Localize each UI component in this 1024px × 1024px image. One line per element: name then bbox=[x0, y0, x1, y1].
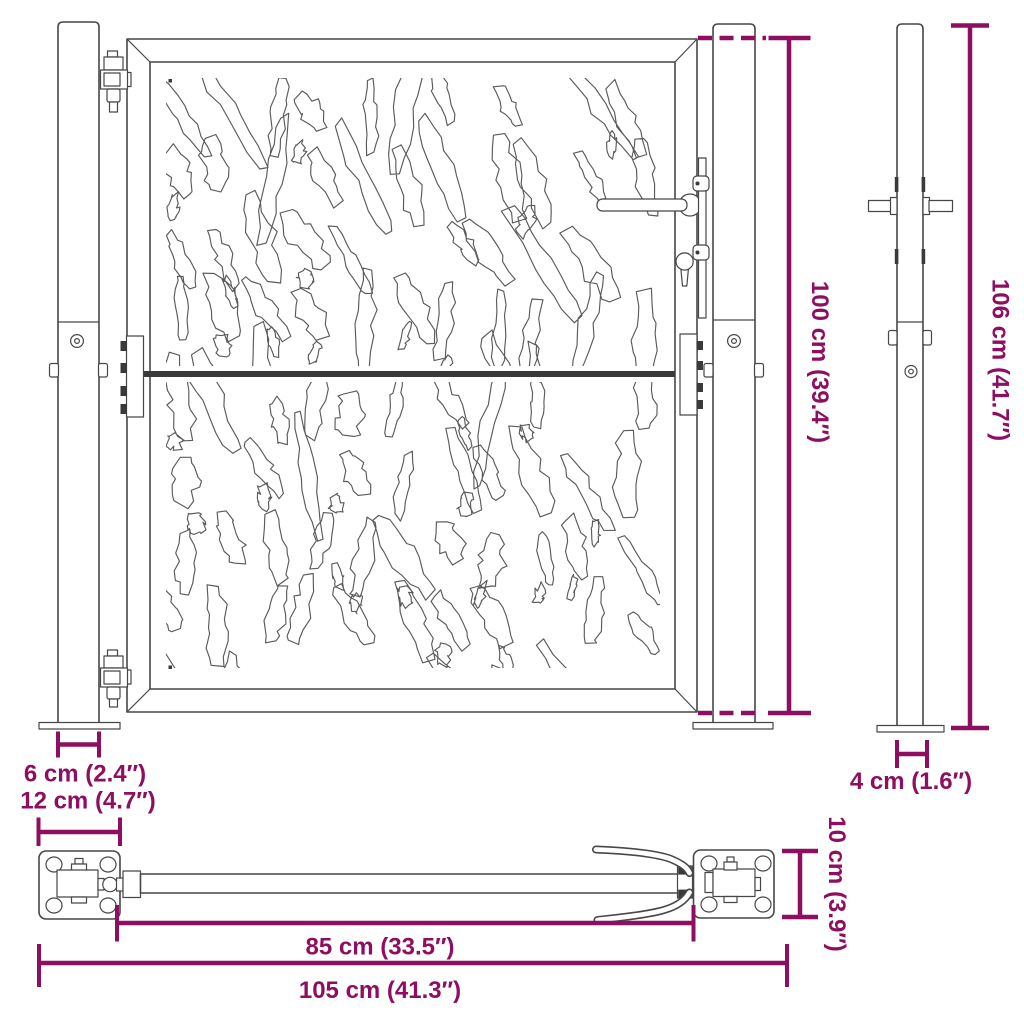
bar-coupler bbox=[123, 871, 141, 898]
panel-corner-dot-top bbox=[169, 79, 173, 83]
base-plate-width-label: 12 cm (4.7″) bbox=[20, 788, 156, 815]
mid-lock-plate-body bbox=[680, 334, 697, 415]
latch-right-tab bbox=[755, 878, 761, 891]
plate-hole bbox=[701, 897, 717, 912]
latch-body bbox=[713, 869, 755, 897]
side-latch-tick-4 bbox=[922, 249, 926, 264]
latch-pivot-upper bbox=[696, 182, 700, 186]
side-base-plate bbox=[877, 726, 944, 733]
side-latch-tick-2 bbox=[895, 249, 899, 264]
bottom-hinge-body-inner bbox=[104, 671, 120, 684]
plate-hole bbox=[100, 898, 116, 913]
bottom-hinge-pin bbox=[107, 687, 120, 699]
left-post-outline bbox=[58, 22, 99, 725]
left-post-screw bbox=[71, 335, 84, 348]
left-base-plate bbox=[39, 723, 120, 730]
panel-corner-dot-bottom bbox=[169, 666, 173, 670]
right-post bbox=[704, 24, 764, 725]
handle-bar bbox=[597, 199, 687, 211]
post-height-label: 106 cm (41.7″) bbox=[987, 279, 1014, 441]
post-side-width-label: 4 cm (1.6″) bbox=[850, 768, 972, 795]
plate-hole bbox=[755, 856, 771, 871]
top-hinge-pin-tip bbox=[110, 102, 118, 112]
bottom-hinge-pin-tip bbox=[110, 699, 118, 707]
side-post-bolt-right bbox=[923, 331, 932, 346]
side-latch-tick-3 bbox=[922, 177, 926, 192]
dim-post-side-width: 4 cm (1.6″) bbox=[850, 740, 972, 795]
right-post-bolt-right bbox=[755, 364, 764, 378]
top-hinge-pin bbox=[107, 89, 120, 102]
latch-bolt bbox=[724, 862, 737, 870]
mid-hinge-plate-tab-3 bbox=[121, 386, 128, 396]
right-post-outline bbox=[713, 24, 755, 725]
plate-hole bbox=[755, 897, 771, 912]
base-plate-depth-label: 10 cm (3.9″) bbox=[823, 816, 850, 952]
side-latch-tick-1 bbox=[895, 177, 899, 192]
right-base-plate bbox=[693, 723, 773, 730]
plate-hole bbox=[100, 857, 116, 872]
hinge-body bbox=[57, 870, 98, 897]
latch-end-cap bbox=[705, 873, 713, 893]
mid-hinge-plate-body bbox=[127, 336, 144, 417]
side-post-screw bbox=[905, 366, 917, 378]
hinge-bottom-tab bbox=[72, 897, 87, 903]
gate-height-label: 100 cm (39.4″) bbox=[806, 281, 833, 443]
hinge-pivot bbox=[103, 877, 117, 891]
mid-lock-plate-tab-1 bbox=[697, 341, 704, 350]
latch-block-upper bbox=[693, 176, 709, 191]
hinge-bolt-cap bbox=[75, 859, 83, 865]
latch-bolt-cap bbox=[727, 857, 734, 862]
mid-lock-plate-tab-3 bbox=[697, 383, 704, 392]
dim-base-plate-width: 12 cm (4.7″) bbox=[20, 788, 156, 847]
mid-hinge-plate-tab-4 bbox=[121, 404, 128, 414]
top-hinge-bolt bbox=[104, 57, 123, 70]
mid-lock-plate bbox=[680, 334, 703, 415]
hinge-link bbox=[117, 878, 124, 891]
mid-lock-plate-tab-2 bbox=[697, 361, 704, 370]
bottom-hinge-bolt bbox=[104, 656, 123, 668]
dim-base-plate-depth: 10 cm (3.9″) bbox=[782, 816, 850, 952]
side-view bbox=[869, 24, 953, 732]
right-post-bolt-left bbox=[704, 364, 713, 378]
left-post bbox=[50, 22, 108, 725]
total-width-label: 105 cm (41.3″) bbox=[299, 977, 461, 1004]
mid-hinge-plate bbox=[121, 336, 144, 417]
left-post-bolt-right bbox=[99, 364, 108, 378]
top-hinge-cap bbox=[108, 51, 118, 57]
gate-mid-rail bbox=[144, 371, 675, 377]
front-view bbox=[39, 22, 773, 767]
bottom-view bbox=[39, 850, 774, 921]
left-post-bolt-left bbox=[50, 364, 59, 378]
latch-block-lower bbox=[693, 245, 709, 260]
right-post-screw bbox=[728, 335, 741, 348]
mid-hinge-plate-tab-2 bbox=[121, 363, 128, 373]
dim-post-front-width: 6 cm (2.4″) bbox=[24, 732, 146, 788]
post-front-width-label: 6 cm (2.4″) bbox=[24, 761, 146, 788]
dim-opening-width: 85 cm (33.5″) bbox=[117, 905, 694, 961]
dim-gate-height: 100 cm (39.4″) bbox=[768, 38, 833, 713]
mid-hinge-plate-tab-1 bbox=[121, 341, 128, 351]
top-hinge-body-inner bbox=[104, 73, 120, 86]
side-handle-bar-left bbox=[869, 201, 892, 212]
keyhole-circle bbox=[676, 253, 693, 270]
side-handle-bar-right bbox=[929, 201, 953, 212]
dim-post-height: 106 cm (41.7″) bbox=[951, 26, 1014, 729]
side-post-bolt-left bbox=[889, 331, 898, 346]
gate-bar bbox=[141, 874, 682, 893]
latch-bottom-tab bbox=[724, 897, 737, 903]
side-handle-flange-left bbox=[891, 198, 898, 215]
bottom-hinge-cap bbox=[108, 650, 118, 656]
gate-dimension-diagram: 100 cm (39.4″) 106 cm (41.7″) 6 cm (2.4″… bbox=[0, 0, 1024, 1024]
opening-width-label: 85 cm (33.5″) bbox=[306, 934, 455, 961]
mid-lock-plate-tab-4 bbox=[697, 400, 704, 409]
latch-pivot-lower bbox=[696, 251, 700, 255]
plate-hole bbox=[46, 898, 62, 913]
